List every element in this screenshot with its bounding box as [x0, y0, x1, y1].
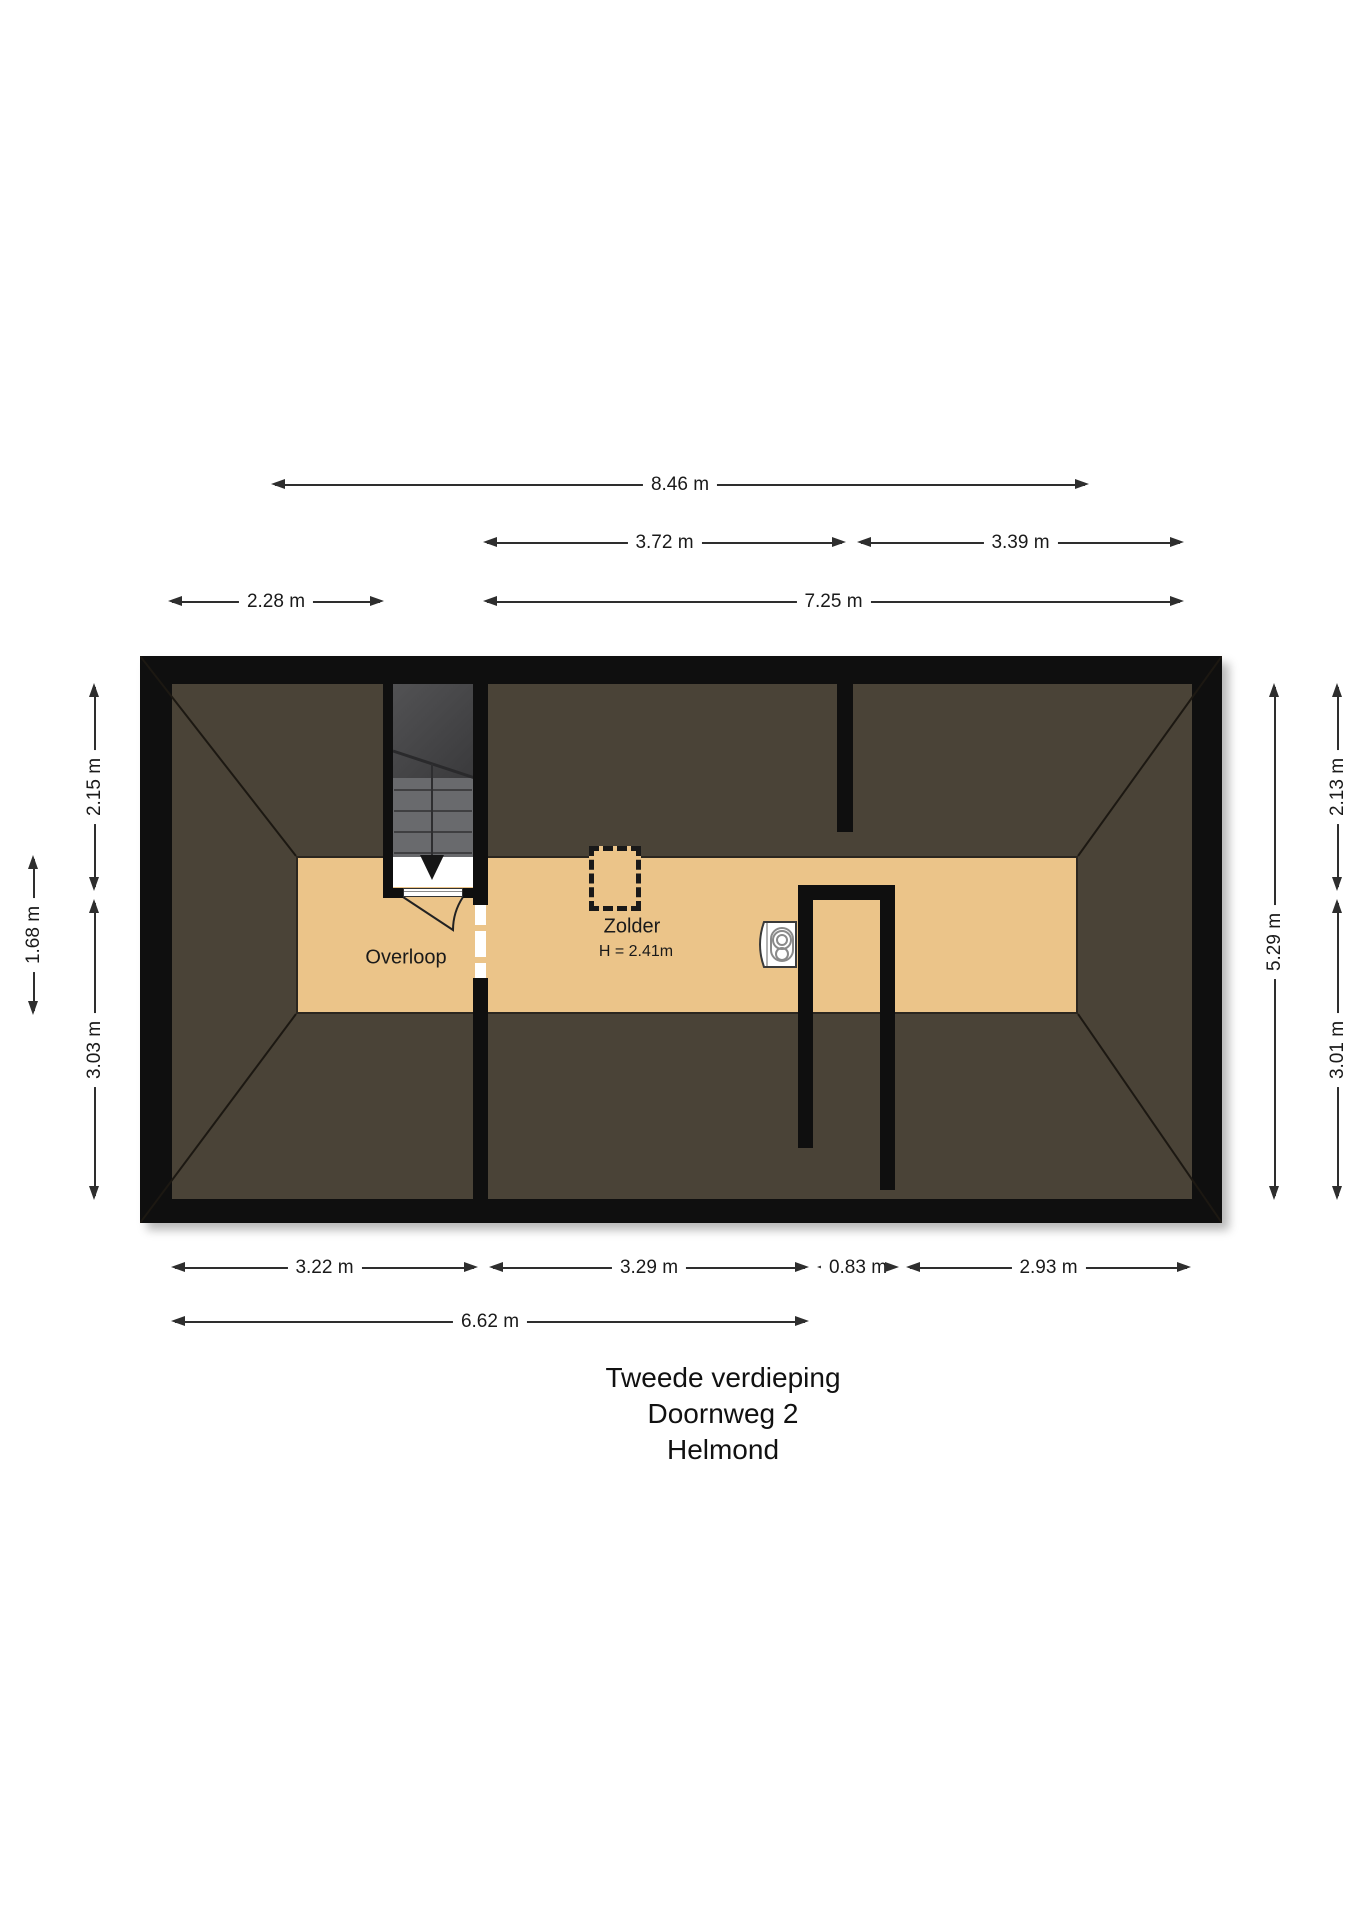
arrow-down-icon: [89, 877, 99, 891]
arrow-down-icon: [1332, 1186, 1342, 1200]
arrow-down-icon: [89, 1186, 99, 1200]
dimension-label: 2.13 m: [1327, 750, 1349, 824]
stair-down-arrow-icon: [420, 855, 444, 880]
chimney-dashed-icon: [589, 846, 641, 911]
door-jamb-left: [393, 888, 403, 898]
plan-linework: [140, 656, 1222, 1223]
arrow-down-icon: [1332, 877, 1342, 891]
opening-gap: [475, 925, 486, 931]
dimension-label: 7.25 m: [796, 591, 870, 613]
wall-closet-right: [880, 900, 895, 1190]
arrow-down-icon: [28, 1001, 38, 1015]
dimension-label: 2.93 m: [1011, 1257, 1085, 1279]
wall-divider-upper: [473, 684, 488, 905]
dimension-label: 3.72 m: [627, 532, 701, 554]
dimension-label: 3.22 m: [287, 1257, 361, 1279]
title-block: Tweede verdieping Doornweg 2 Helmond: [423, 1360, 1023, 1468]
dimension-label: 8.46 m: [643, 474, 717, 496]
dimension-label: 2.15 m: [84, 750, 106, 824]
arrow-right-icon: [1177, 1262, 1191, 1272]
wall-divider-lower: [473, 978, 488, 1199]
arrow-right-icon: [832, 537, 846, 547]
dimension-label: 5.29 m: [1264, 904, 1286, 978]
boiler-icon: [756, 921, 799, 968]
dimension-label: 0.83 m: [821, 1257, 895, 1279]
ceiling-height-label: H = 2.41m: [599, 943, 673, 961]
dimension-label: 3.29 m: [612, 1257, 686, 1279]
arrow-right-icon: [795, 1316, 809, 1326]
arrow-down-icon: [1269, 1186, 1279, 1200]
stair-door: [403, 888, 463, 897]
dimension-label: 3.03 m: [84, 1012, 106, 1086]
arrow-right-icon: [795, 1262, 809, 1272]
arrow-right-icon: [885, 1262, 899, 1272]
dimension-label: 6.62 m: [453, 1311, 527, 1333]
dimension-label: 1.68 m: [23, 898, 45, 972]
room-label-overloop: Overloop: [365, 947, 446, 970]
arrow-right-icon: [464, 1262, 478, 1272]
opening-gap: [475, 957, 486, 963]
door-jamb-right: [463, 888, 473, 898]
title-floor: Tweede verdieping: [423, 1360, 1023, 1396]
floorplan: [140, 656, 1222, 1223]
wall-closet-top: [798, 885, 895, 900]
dimension-label: 3.39 m: [983, 532, 1057, 554]
arrow-right-icon: [370, 596, 384, 606]
title-street: Doornweg 2: [423, 1396, 1023, 1432]
dimension-label: 2.28 m: [239, 591, 313, 613]
arrow-right-icon: [1170, 537, 1184, 547]
wall-stair-left: [383, 684, 393, 898]
wall-opening: [475, 905, 486, 978]
wall-closet-left: [798, 900, 813, 1148]
title-city: Helmond: [423, 1432, 1023, 1468]
room-label-zolder: Zolder: [604, 916, 661, 939]
floorplan-page: 8.46 m3.72 m3.39 m2.28 m7.25 m3.22 m3.29…: [0, 0, 1358, 1920]
dimension-label: 3.01 m: [1327, 1012, 1349, 1086]
arrow-right-icon: [1075, 479, 1089, 489]
arrow-right-icon: [1170, 596, 1184, 606]
wall-stub-top: [837, 684, 853, 832]
